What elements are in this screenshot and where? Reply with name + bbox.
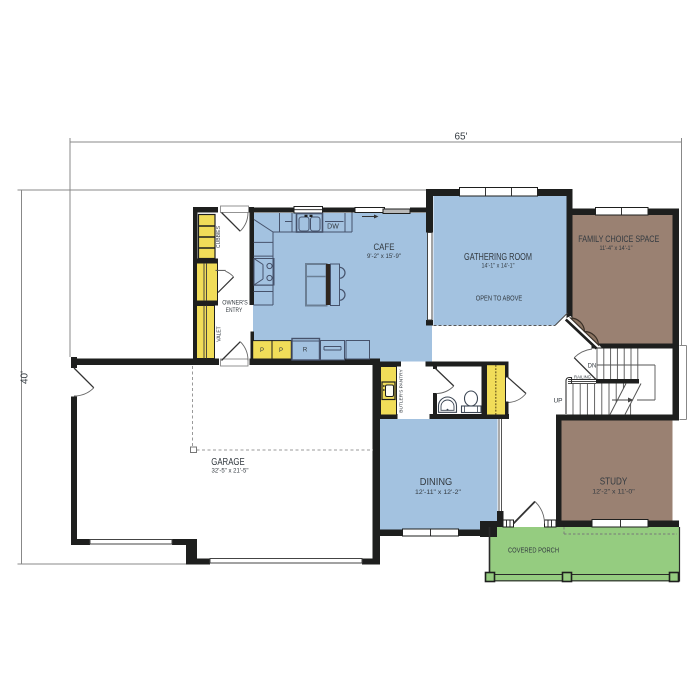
svg-text:12'-2" x 11'-0": 12'-2" x 11'-0"	[592, 489, 635, 496]
svg-text:GATHERING ROOM: GATHERING ROOM	[464, 252, 532, 263]
svg-text:DW: DW	[327, 224, 339, 231]
svg-text:P: P	[260, 348, 264, 354]
svg-text:DINING: DINING	[420, 477, 453, 488]
svg-text:FAMILY CHOICE SPACE: FAMILY CHOICE SPACE	[578, 234, 659, 245]
svg-text:VALET: VALET	[217, 326, 223, 341]
svg-text:40': 40'	[19, 371, 31, 384]
svg-text:12'-11" x 12'-2": 12'-11" x 12'-2"	[415, 489, 461, 496]
svg-text:RAILING: RAILING	[574, 375, 591, 380]
svg-text:CUBBIES: CUBBIES	[216, 225, 222, 248]
svg-text:OWNER'S: OWNER'S	[222, 300, 248, 307]
svg-text:11'-4" x 14'-1": 11'-4" x 14'-1"	[600, 245, 633, 252]
svg-text:32'-5" x 21'-5": 32'-5" x 21'-5"	[212, 468, 249, 475]
svg-text:DN: DN	[588, 364, 597, 370]
svg-text:P: P	[279, 348, 283, 354]
svg-text:R: R	[303, 347, 308, 354]
svg-text:OPEN TO ABOVE: OPEN TO ABOVE	[476, 296, 523, 303]
svg-text:BUTLER'S PANTRY: BUTLER'S PANTRY	[399, 369, 405, 413]
svg-text:UP: UP	[553, 398, 562, 405]
svg-text:ENTRY: ENTRY	[226, 307, 243, 314]
svg-text:STUDY: STUDY	[600, 477, 628, 488]
svg-text:14'-1" x 14'-1": 14'-1" x 14'-1"	[482, 263, 515, 270]
svg-text:9'-2" x 15'-9": 9'-2" x 15'-9"	[367, 253, 401, 260]
svg-text:65': 65'	[455, 131, 468, 143]
svg-text:GARAGE: GARAGE	[211, 457, 245, 468]
svg-text:COVERED PORCH: COVERED PORCH	[508, 546, 559, 555]
svg-text:CAFE: CAFE	[374, 242, 395, 253]
